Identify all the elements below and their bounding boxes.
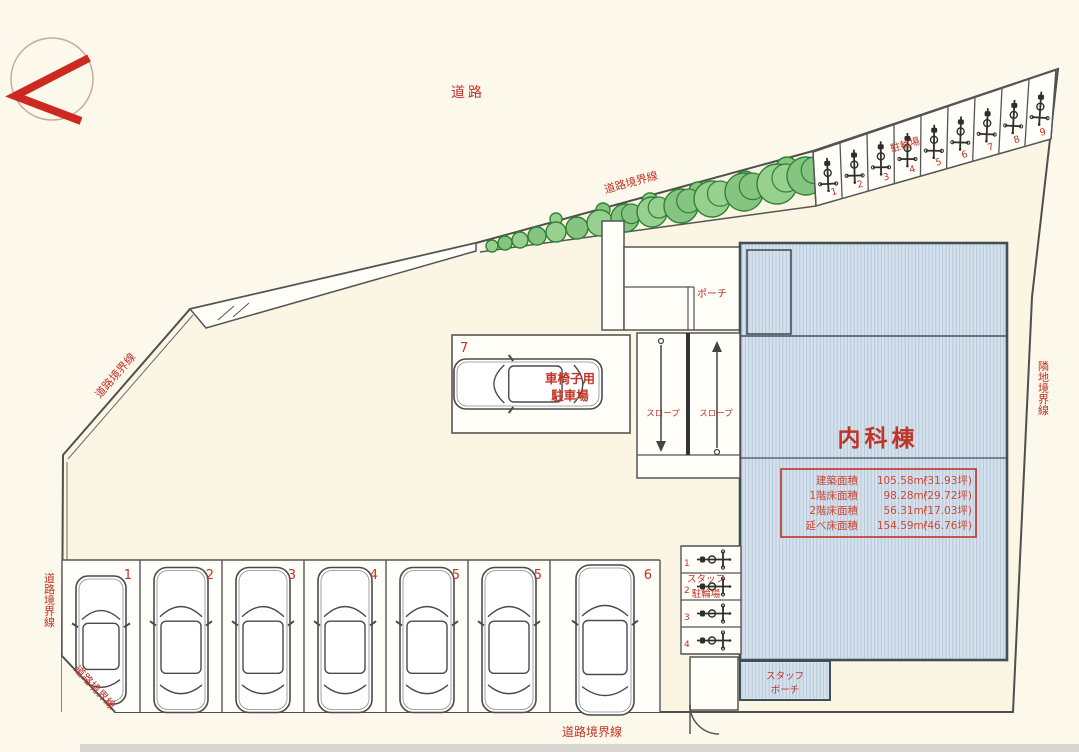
staff-bicycle-label-line2: 駐輪場 [692,588,721,600]
staff-bike-number: 1 [684,559,690,569]
stall-number: 1 [124,568,132,583]
stall-number: 4 [370,568,378,583]
car-roof [83,623,119,669]
bike-seat [984,111,990,116]
tree [498,236,512,250]
stall-number: 3 [288,568,296,583]
area-table-cell: 154.59m² [877,520,928,532]
road-label: 道路 [451,85,485,101]
bike-handlebar [1005,125,1021,126]
car-roof [325,621,365,673]
car-top-view [150,568,212,713]
staff-bicycle-stalls: 1234 [681,546,741,654]
bike-seat [700,638,705,644]
bike-seat [1011,103,1017,108]
car-parking-stalls: 1234556 [62,560,660,715]
bike-front-dot [729,639,732,642]
staff-bicycle-label-line1: スタッフ [687,574,725,585]
road-boundary-label-left-vertical: 道路境界線 [43,571,56,627]
ramp-area [637,333,740,478]
bike-seat [931,128,937,133]
bottom-edge-band [80,744,1079,752]
bike-front-dot [729,558,732,561]
area-table-cell: 56.31m² [884,505,929,517]
stall-number: 6 [644,568,652,583]
car-roof [489,621,529,673]
slope-label-right: スロープ [699,409,733,419]
staff-bike-number: 2 [684,586,690,596]
building-name: 内科棟 [838,426,919,452]
stall-number: 2 [206,568,214,583]
site-plan-drawing: 123456789 7 車椅子用 駐車場 1234556 [0,0,1079,752]
staff-bike-number: 3 [684,613,690,623]
area-table-cell: (29.72坪) [923,489,972,502]
bike-seat [851,153,857,158]
bike-front-dot [729,612,732,615]
tree [546,222,566,242]
area-table-cell: (17.03坪) [923,504,972,517]
stall-number: 5 [452,568,460,583]
car-roof [407,621,447,673]
road-boundary-label-bottom: 道路境界線 [562,724,622,739]
staff-porch-label-line2: ポーチ [771,685,800,696]
site-plan-page: 123456789 7 車椅子用 駐車場 1234556 [0,0,1079,752]
car-top-view [396,568,458,713]
area-table-cell: 建築面積 [816,474,858,487]
tree [486,240,498,252]
car-roof [243,621,283,673]
entry-walkway [602,221,624,330]
area-table-cell: 延べ床面積 [806,519,859,532]
bike-seat [700,557,705,563]
gate-enclosure [690,657,738,710]
adjacent-land-boundary-label: 隣地境界線 [1037,359,1050,415]
stall-number: 5 [534,568,542,583]
bike-seat [824,161,830,166]
bike-seat [700,611,705,617]
car-top-view [572,565,638,715]
tree [566,217,588,239]
bike-front-dot [729,585,732,588]
porch-label: ポーチ [697,288,727,300]
wheelchair-parking-stall: 7 車椅子用 駐車場 [452,335,630,433]
bike-seat [1038,94,1044,99]
car-roof [583,621,627,675]
car-top-view [232,568,294,713]
tree [528,227,546,245]
area-table-cell: 2階床面積 [809,504,858,517]
ramp-divider [686,333,690,455]
bike-seat [958,119,964,124]
area-table-cell: 1階床面積 [809,489,858,502]
car-top-view [314,568,376,713]
stall-number: 7 [460,341,468,356]
area-table-cell: (46.76坪) [923,519,972,532]
bike-handlebar [820,183,836,184]
bike-handlebar [1032,117,1048,118]
wheelchair-label-line2: 駐車場 [551,388,589,403]
area-table-cell: (31.93坪) [923,474,972,487]
staff-bike-number: 4 [684,640,690,650]
wheelchair-label-line1: 車椅子用 [545,371,595,386]
bike-handlebar [979,134,995,135]
slope-label-left: スロープ [646,409,680,419]
staff-porch-label-line1: スタッフ [766,671,804,682]
tree [512,232,528,248]
area-table-cell: 98.28m² [884,490,929,502]
car-roof [161,621,201,673]
car-top-view [478,568,540,713]
bike-seat [878,144,884,149]
area-table-cell: 105.58m² [877,475,928,487]
